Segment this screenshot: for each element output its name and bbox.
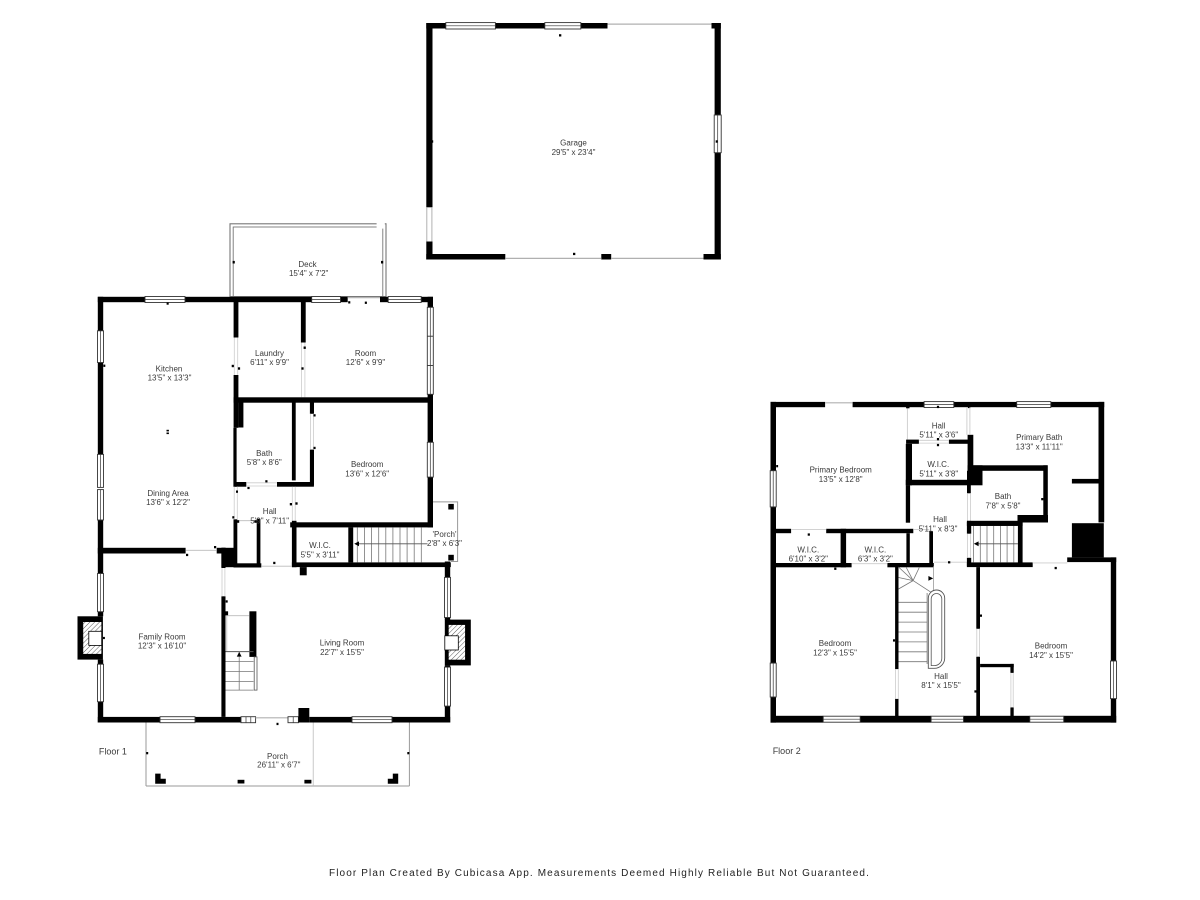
svg-text:6'3" x 3'2": 6'3" x 3'2" — [858, 555, 893, 564]
svg-text:6'11" x 9'9": 6'11" x 9'9" — [250, 358, 289, 367]
svg-text:Hall: Hall — [934, 672, 948, 681]
svg-text:7'8" x 5'8": 7'8" x 5'8" — [986, 501, 1021, 510]
svg-text:Family Room: Family Room — [138, 632, 185, 641]
svg-text:Primary Bath: Primary Bath — [1016, 433, 1062, 442]
svg-text:5'9" x 7'11": 5'9" x 7'11" — [250, 517, 289, 526]
svg-text:Floor 2: Floor 2 — [773, 746, 801, 756]
svg-text:'Porch': 'Porch' — [433, 530, 457, 539]
svg-text:W.I.C.: W.I.C. — [865, 546, 887, 555]
svg-text:W.I.C.: W.I.C. — [927, 460, 949, 469]
svg-text:Deck: Deck — [298, 260, 317, 269]
svg-text:W.I.C.: W.I.C. — [797, 546, 819, 555]
svg-text:Hall: Hall — [933, 515, 947, 524]
svg-text:Laundry: Laundry — [255, 349, 284, 358]
svg-text:Floor 1: Floor 1 — [99, 747, 127, 757]
svg-text:12'6" x 9'9": 12'6" x 9'9" — [346, 358, 386, 367]
svg-text:5'11" x 8'3": 5'11" x 8'3" — [919, 524, 958, 533]
svg-text:22'7" x 15'5": 22'7" x 15'5" — [320, 648, 364, 657]
svg-text:29'5" x 23'4": 29'5" x 23'4" — [552, 148, 596, 157]
svg-text:2'8" x 6'3": 2'8" x 6'3" — [427, 539, 462, 548]
svg-text:26'11" x 6'7": 26'11" x 6'7" — [257, 761, 300, 770]
svg-text:Dining Area: Dining Area — [147, 489, 189, 498]
svg-text:Hall: Hall — [263, 507, 277, 516]
svg-text:13'6" x 12'6": 13'6" x 12'6" — [345, 469, 389, 478]
svg-text:6'10" x 3'2": 6'10" x 3'2" — [789, 555, 829, 564]
svg-text:5'11" x 3'6": 5'11" x 3'6" — [919, 431, 958, 440]
svg-text:Kitchen: Kitchen — [156, 364, 183, 373]
svg-text:13'5" x 12'8": 13'5" x 12'8" — [819, 475, 863, 484]
svg-text:Bedroom: Bedroom — [351, 460, 384, 469]
svg-text:Living Room: Living Room — [320, 639, 365, 648]
svg-text:W.I.C.: W.I.C. — [309, 541, 331, 550]
svg-text:13'3" x 11'11": 13'3" x 11'11" — [1016, 442, 1063, 451]
svg-text:Bath: Bath — [995, 492, 1011, 501]
svg-text:13'6" x 12'2": 13'6" x 12'2" — [146, 498, 190, 507]
svg-text:Bath: Bath — [256, 449, 272, 458]
svg-text:Floor Plan Created By Cubicasa: Floor Plan Created By Cubicasa App. Meas… — [329, 868, 870, 879]
svg-text:Bedroom: Bedroom — [1035, 642, 1068, 651]
svg-text:15'4" x 7'2": 15'4" x 7'2" — [289, 269, 329, 278]
svg-text:Hall: Hall — [932, 421, 946, 430]
svg-text:Primary Bedroom: Primary Bedroom — [810, 466, 873, 475]
svg-text:Bedroom: Bedroom — [819, 639, 852, 648]
svg-text:Room: Room — [355, 349, 377, 358]
svg-text:12'3" x 16'10": 12'3" x 16'10" — [138, 642, 186, 651]
svg-text:8'1" x 15'5": 8'1" x 15'5" — [921, 681, 961, 690]
svg-text:5'11" x 3'8": 5'11" x 3'8" — [919, 469, 958, 478]
svg-text:5'5" x 3'11": 5'5" x 3'11" — [301, 551, 340, 560]
svg-text:Garage: Garage — [560, 139, 587, 148]
svg-text:5'8" x 8'6": 5'8" x 8'6" — [247, 458, 282, 467]
svg-text:12'3" x 15'5": 12'3" x 15'5" — [813, 649, 857, 658]
svg-text:14'2" x 15'5": 14'2" x 15'5" — [1029, 651, 1073, 660]
svg-text:13'5" x 13'3": 13'5" x 13'3" — [148, 374, 192, 383]
